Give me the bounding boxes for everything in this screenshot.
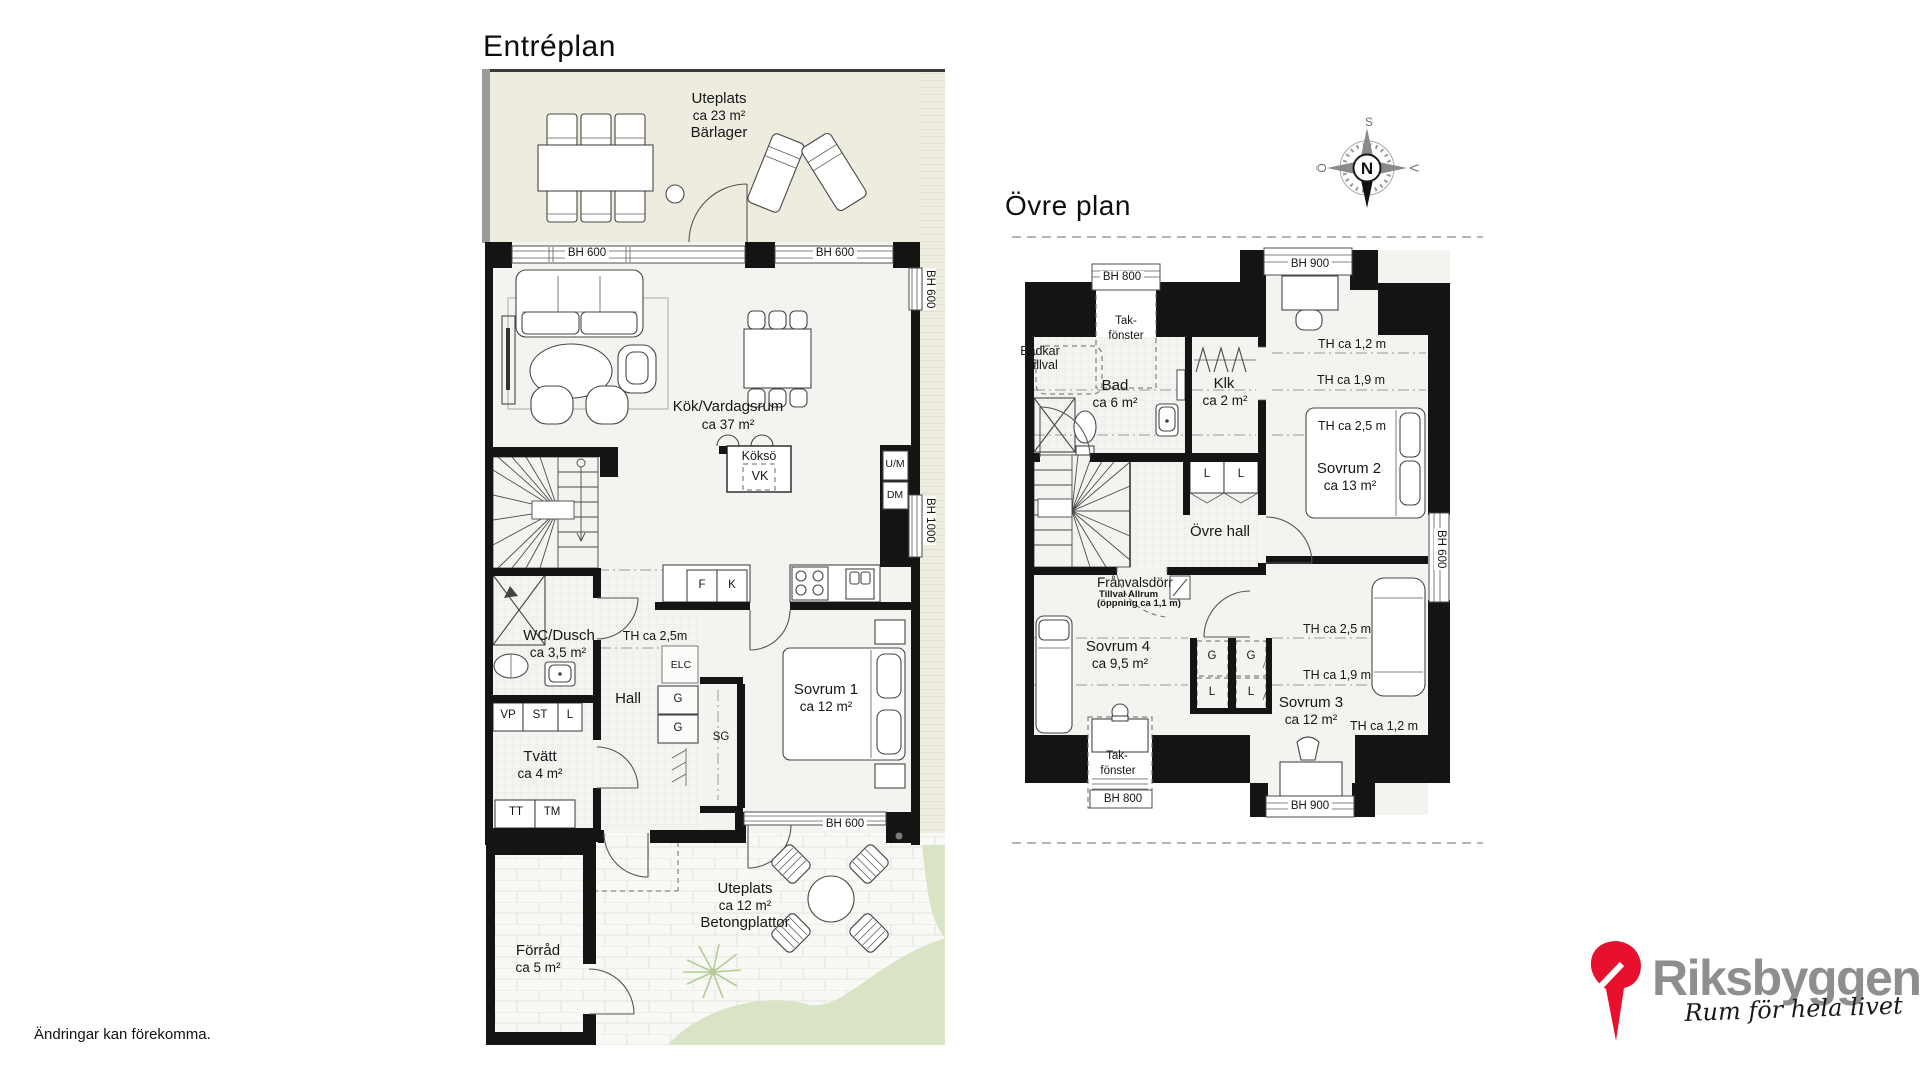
window-label-bh1000-right: BH 1000 (923, 496, 936, 545)
kitchen-island-label: Köksö (742, 449, 777, 463)
entreplan (482, 69, 945, 1045)
bedroom4-furniture (1036, 616, 1072, 733)
bedroom2-name: Sovrum 2 (1317, 460, 1381, 477)
window-label-bh600-1: BH 600 (565, 247, 609, 259)
bedroom3-th19: TH ca 1,9 m (1303, 668, 1371, 682)
bedroom1-area: ca 12 m² (800, 699, 853, 715)
upper-hall-l2: L (1238, 468, 1244, 481)
compass-n: N (1361, 159, 1373, 178)
hall-name: Hall (615, 690, 641, 707)
oven-micro-label: U/M (885, 458, 904, 470)
terrace-top-surface: Bärlager (691, 124, 748, 141)
closet-g1: G (1208, 650, 1217, 663)
skylight-top-l2: fönster (1108, 330, 1143, 343)
freezer-label: K (728, 579, 736, 592)
bedroom3-th25: TH ca 2,5 m (1303, 622, 1371, 636)
riksbyggen-logo-mark (1591, 941, 1641, 1041)
hall-ceiling-height: TH ca 2,5m (623, 629, 688, 643)
window-label-bh800-bottom: BH 800 (1101, 793, 1145, 805)
retaining-wall (482, 69, 490, 243)
bath-opt2: Tillval (1026, 358, 1057, 372)
bath-opt1: Badkar (1020, 344, 1060, 358)
bath-name: Bad (1102, 377, 1129, 394)
laundry-area: ca 4 m² (517, 766, 562, 782)
klk-area: ca 2 m² (1202, 393, 1247, 409)
closet-l2: L (1248, 686, 1254, 699)
entreplan-title: Entréplan (483, 30, 616, 65)
bedroom2-area: ca 13 m² (1324, 478, 1377, 494)
laundry-l: L (567, 709, 573, 722)
upper-hall-name: Övre hall (1190, 523, 1250, 540)
fridge-label: F (698, 579, 705, 592)
storage-name: Förråd (516, 942, 560, 959)
window-label-bh600-right: BH 600 (923, 268, 936, 310)
terrace-bottom-surface: Betongplattor (700, 914, 789, 931)
wc-area: ca 3,5 m² (530, 645, 586, 661)
dishwasher-label: DM (887, 489, 903, 501)
hall-g1: G (674, 693, 683, 706)
klk-name: Klk (1214, 375, 1235, 392)
bath-area: ca 6 m² (1092, 395, 1137, 411)
bedroom3-area: ca 12 m² (1285, 712, 1338, 728)
bedroom2-th12: TH ca 1,2 m (1318, 337, 1386, 351)
storage-area: ca 5 m² (515, 960, 560, 976)
hob-label: VK (752, 469, 769, 483)
window-label-bh900-top: BH 900 (1288, 258, 1332, 270)
skylight-bottom-l2: fönster (1100, 765, 1135, 778)
kitchen-living-area: ca 37 m² (702, 417, 755, 433)
bedroom2-th25: TH ca 2,5 m (1318, 419, 1386, 433)
bedroom2-th19: TH ca 1,9 m (1317, 373, 1385, 387)
closet-g2: G (1247, 650, 1256, 663)
terrace-bottom-name: Uteplats (717, 880, 772, 897)
laundry-st: ST (533, 709, 548, 722)
floorplan-page: N S Ö V Entréplan Uteplats ca 23 m² Bärl… (0, 0, 1920, 1080)
laundry-vp: VP (500, 709, 515, 722)
skylight-bottom-l1: Tak- (1106, 750, 1128, 763)
bedroom4-area: ca 9,5 m² (1092, 656, 1148, 672)
bedroom4-name: Sovrum 4 (1086, 638, 1150, 655)
laundry-tt: TT (509, 806, 523, 819)
window-label-bh800-top: BH 800 (1100, 271, 1144, 283)
terrace-top-name: Uteplats (691, 90, 746, 107)
bedroom1-name: Sovrum 1 (794, 681, 858, 698)
bedroom3-th12: TH ca 1,2 m (1350, 719, 1418, 733)
compass-w: V (1407, 164, 1421, 172)
floorplan-drawing: N S Ö V (0, 0, 1920, 1080)
elc-label: ELC (671, 659, 691, 671)
dining-set (744, 311, 811, 407)
window-label-bh900-bottom: BH 900 (1288, 800, 1332, 812)
compass-s: S (1365, 115, 1373, 129)
ovreplan-title: Övre plan (1005, 190, 1131, 222)
compass-rose: N S Ö V (1315, 115, 1421, 208)
laundry-tm: TM (544, 806, 561, 819)
laundry-name: Tvätt (523, 748, 556, 765)
terrace-top-area: ca 23 m² (693, 108, 746, 124)
upper-hall-l1: L (1204, 468, 1210, 481)
ovreplan: N S Ö V (1012, 115, 1483, 843)
skylight-top-l1: Tak- (1115, 315, 1137, 328)
disclaimer-text: Ändringar kan förekomma. (34, 1026, 211, 1043)
wc-name: WC/Dusch (523, 627, 595, 644)
hall-sg: SG (713, 731, 730, 744)
compass-e: Ö (1315, 163, 1329, 172)
terrace-top-edge (489, 69, 945, 72)
closet-l1: L (1209, 686, 1215, 699)
kitchen-living-name: Kök/Vardagsrum (673, 398, 784, 415)
bedroom1-window-label: BH 600 (823, 818, 867, 830)
optdoor-l3: (öppning ca 1,1 m) (1097, 599, 1181, 610)
terrace-bottom-area: ca 12 m² (719, 898, 772, 914)
hall-g2: G (674, 722, 683, 735)
bedroom3-name: Sovrum 3 (1279, 694, 1343, 711)
window-label-bh600-upper-right: BH 600 (1434, 528, 1447, 570)
window-label-bh600-2: BH 600 (813, 247, 857, 259)
